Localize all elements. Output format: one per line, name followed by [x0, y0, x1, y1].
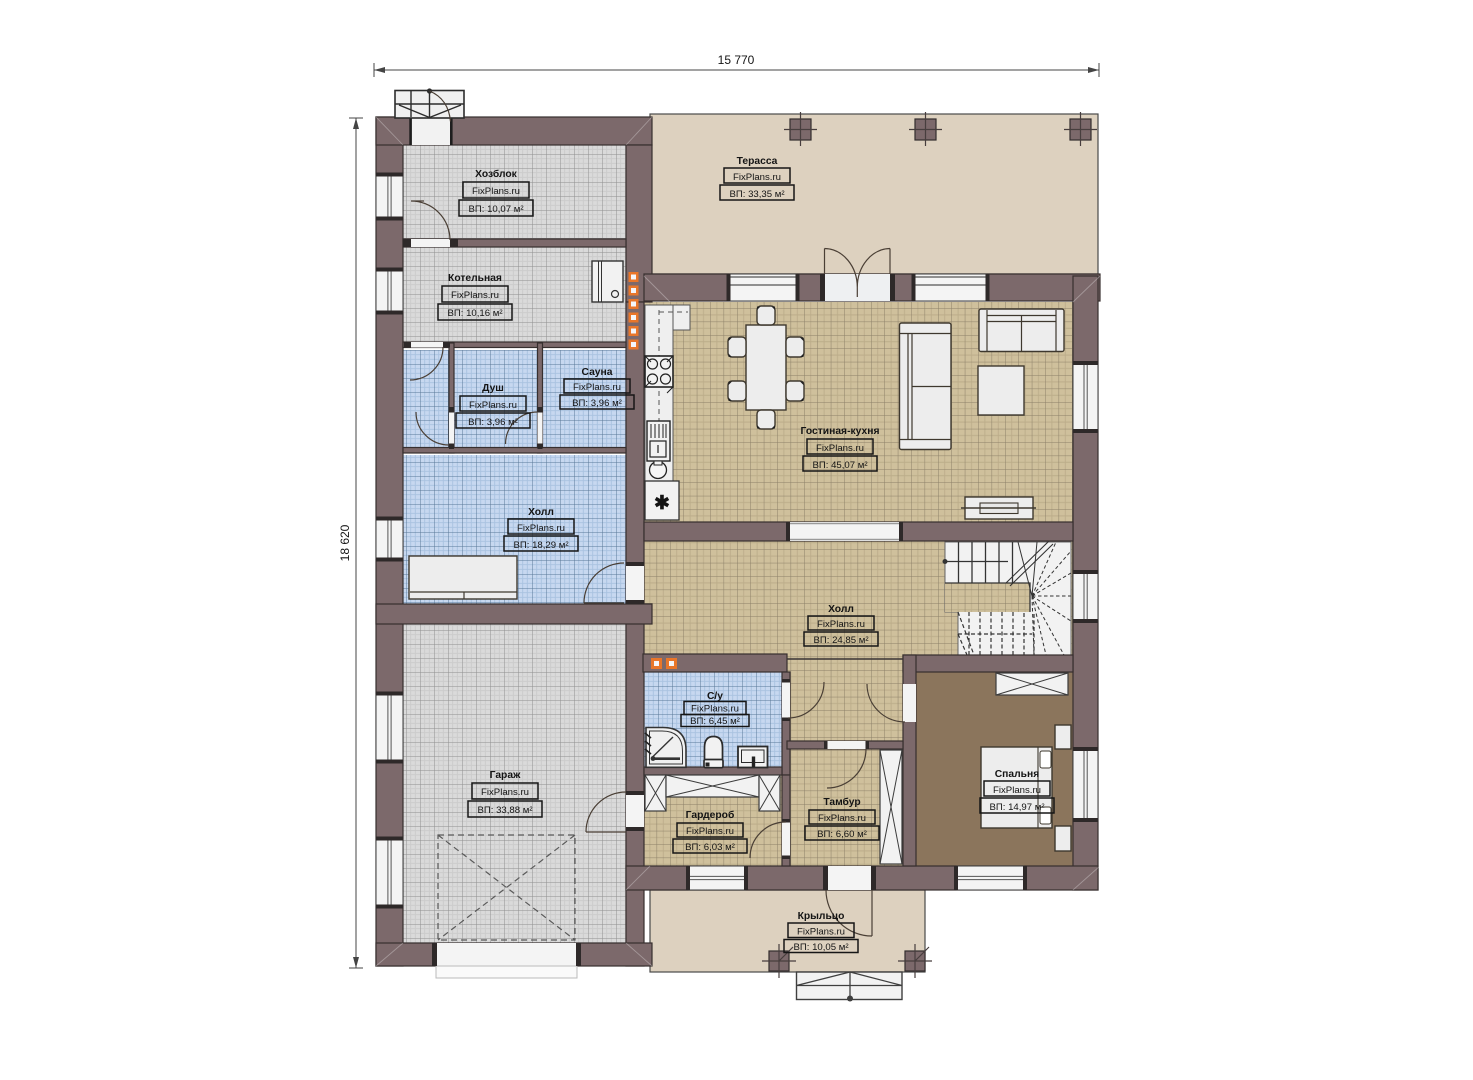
svg-text:FixPlans.ru: FixPlans.ru [451, 290, 499, 301]
svg-text:FixPlans.ru: FixPlans.ru [993, 785, 1041, 796]
svg-text:ВП: 33,88 м²: ВП: 33,88 м² [477, 805, 533, 816]
svg-text:FixPlans.ru: FixPlans.ru [686, 826, 734, 837]
svg-text:Гардероб: Гардероб [686, 809, 735, 821]
svg-text:ВП: 10,16 м²: ВП: 10,16 м² [447, 308, 503, 319]
svg-text:Холл: Холл [528, 507, 554, 518]
svg-text:18 620: 18 620 [338, 524, 352, 561]
svg-text:FixPlans.ru: FixPlans.ru [573, 382, 621, 393]
svg-text:FixPlans.ru: FixPlans.ru [797, 927, 845, 938]
svg-text:ВП: 45,07 м²: ВП: 45,07 м² [812, 460, 868, 471]
svg-text:ВП: 6,45 м²: ВП: 6,45 м² [690, 716, 741, 727]
svg-text:ВП: 6,60 м²: ВП: 6,60 м² [817, 829, 868, 840]
svg-text:FixPlans.ru: FixPlans.ru [818, 813, 866, 824]
svg-text:Котельная: Котельная [448, 273, 502, 284]
svg-text:С/у: С/у [707, 691, 723, 702]
svg-text:ВП: 18,29 м²: ВП: 18,29 м² [513, 540, 569, 551]
svg-text:ВП: 10,07 м²: ВП: 10,07 м² [468, 204, 524, 215]
svg-text:ВП: 33,35 м²: ВП: 33,35 м² [729, 189, 785, 200]
svg-text:✱: ✱ [654, 493, 670, 514]
svg-text:Гостиная-кухня: Гостиная-кухня [801, 426, 880, 437]
svg-text:15 770: 15 770 [718, 53, 755, 67]
svg-text:Сауна: Сауна [582, 367, 613, 378]
svg-text:Спальня: Спальня [995, 769, 1039, 780]
svg-text:Гараж: Гараж [490, 770, 521, 781]
svg-text:ВП: 3,96 м²: ВП: 3,96 м² [468, 417, 519, 428]
svg-text:FixPlans.ru: FixPlans.ru [481, 787, 529, 798]
svg-text:ВП: 3,96 м²: ВП: 3,96 м² [572, 398, 623, 409]
svg-text:Душ: Душ [482, 383, 504, 394]
svg-text:Хозблок: Хозблок [475, 168, 518, 180]
svg-text:ВП: 24,85 м²: ВП: 24,85 м² [813, 635, 869, 646]
svg-text:ВП: 14,97 м²: ВП: 14,97 м² [989, 802, 1045, 813]
svg-text:Крыльцо: Крыльцо [798, 911, 845, 922]
svg-text:ВП: 6,03 м²: ВП: 6,03 м² [685, 842, 736, 853]
svg-text:Холл: Холл [828, 604, 854, 615]
svg-text:Терасса: Терасса [737, 156, 778, 167]
svg-text:FixPlans.ru: FixPlans.ru [733, 172, 781, 183]
svg-text:FixPlans.ru: FixPlans.ru [472, 186, 520, 197]
svg-text:FixPlans.ru: FixPlans.ru [816, 443, 864, 454]
svg-text:FixPlans.ru: FixPlans.ru [691, 704, 739, 715]
svg-text:Тамбур: Тамбур [823, 796, 860, 808]
svg-text:FixPlans.ru: FixPlans.ru [517, 523, 565, 534]
svg-text:ВП: 10,05 м²: ВП: 10,05 м² [793, 942, 849, 953]
svg-text:FixPlans.ru: FixPlans.ru [469, 400, 517, 411]
svg-text:FixPlans.ru: FixPlans.ru [817, 619, 865, 630]
